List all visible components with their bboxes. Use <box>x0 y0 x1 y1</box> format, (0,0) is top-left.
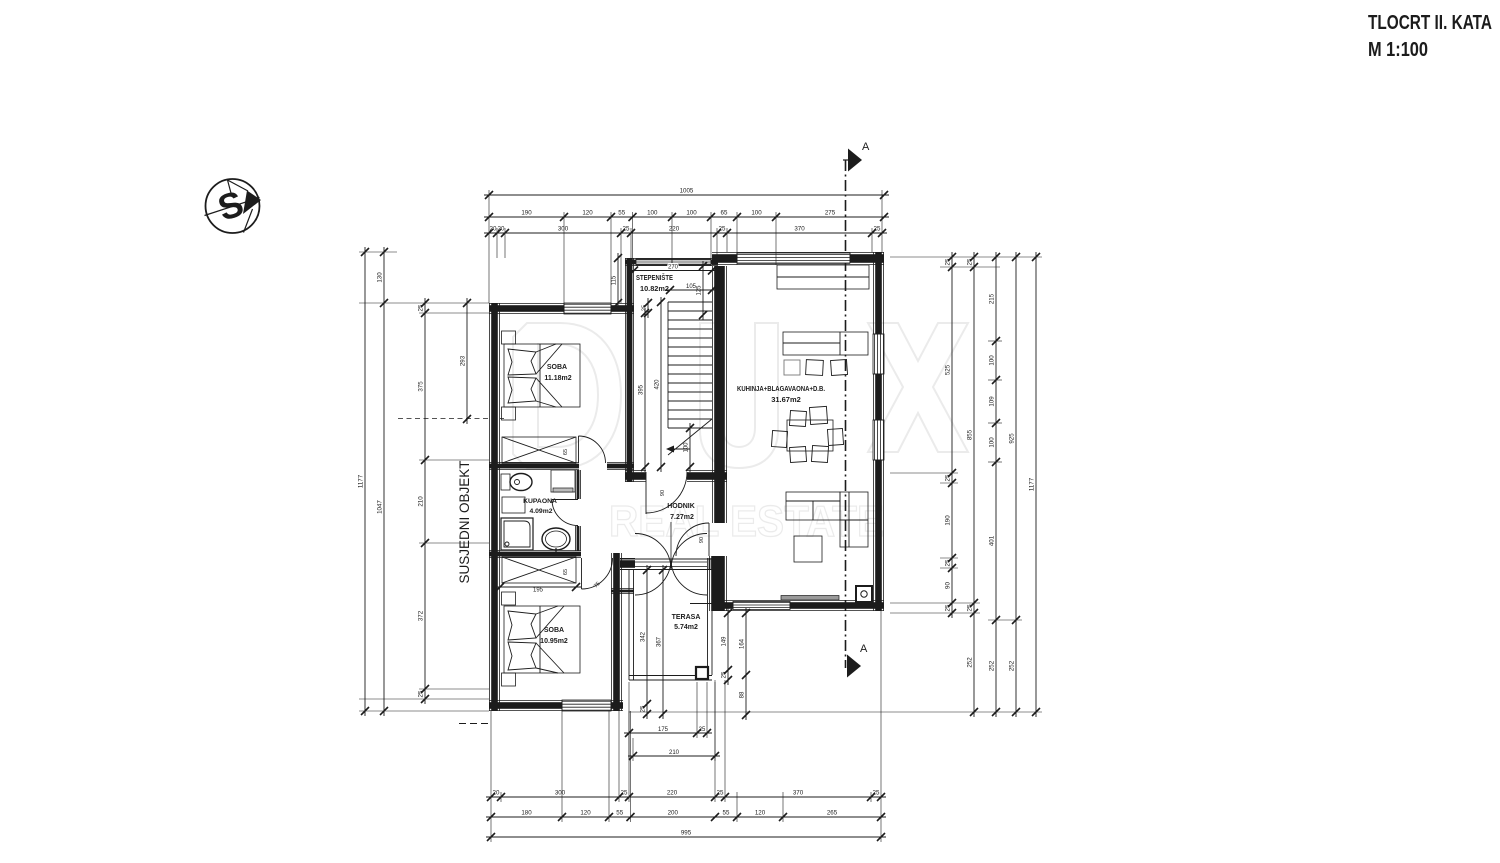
svg-text:1005: 1005 <box>680 188 694 195</box>
svg-text:25: 25 <box>874 226 881 233</box>
svg-text:20: 20 <box>493 790 500 797</box>
svg-text:M 1:100: M 1:100 <box>1368 39 1428 61</box>
svg-text:367: 367 <box>657 636 663 647</box>
svg-text:370: 370 <box>793 790 804 797</box>
svg-text:210: 210 <box>418 496 425 507</box>
svg-text:STEPENIŠTE: STEPENIŠTE <box>636 273 673 282</box>
svg-text:7.27m2: 7.27m2 <box>670 514 694 521</box>
svg-text:105: 105 <box>686 284 697 290</box>
svg-text:375: 375 <box>418 381 425 392</box>
svg-text:100: 100 <box>751 210 762 217</box>
svg-text:25: 25 <box>945 559 952 566</box>
svg-text:25: 25 <box>719 226 726 233</box>
svg-text:25: 25 <box>722 671 728 678</box>
svg-text:109: 109 <box>989 396 996 407</box>
svg-text:A: A <box>860 643 868 655</box>
svg-text:90: 90 <box>660 490 666 496</box>
svg-text:525: 525 <box>945 364 952 375</box>
svg-text:342: 342 <box>641 631 647 642</box>
svg-text:995: 995 <box>681 830 692 837</box>
svg-text:149: 149 <box>722 636 728 647</box>
svg-text:25: 25 <box>717 790 724 797</box>
svg-text:90: 90 <box>699 537 705 543</box>
svg-text:25: 25 <box>641 705 647 712</box>
svg-text:65: 65 <box>563 569 569 575</box>
svg-text:1177: 1177 <box>358 474 365 488</box>
svg-text:115: 115 <box>612 275 618 285</box>
svg-text:100: 100 <box>684 442 690 453</box>
svg-text:25: 25 <box>621 790 628 797</box>
svg-text:25: 25 <box>642 305 648 311</box>
svg-text:31.67m2: 31.67m2 <box>771 395 801 404</box>
svg-text:252: 252 <box>967 657 974 668</box>
svg-text:25: 25 <box>945 474 952 481</box>
svg-text:65: 65 <box>721 210 728 217</box>
svg-text:55: 55 <box>618 210 625 217</box>
svg-text:88: 88 <box>740 691 746 698</box>
svg-text:25: 25 <box>873 790 880 797</box>
svg-text:SOBA: SOBA <box>547 364 567 371</box>
svg-text:65: 65 <box>563 449 569 455</box>
svg-text:KUPAONA: KUPAONA <box>523 498 557 505</box>
svg-text:SUSJEDNI OBJEKT: SUSJEDNI OBJEKT <box>457 460 472 583</box>
svg-text:25: 25 <box>945 604 952 611</box>
svg-text:100: 100 <box>989 437 996 448</box>
svg-text:25: 25 <box>699 727 706 733</box>
svg-text:25: 25 <box>967 604 974 612</box>
svg-text:1177: 1177 <box>1029 477 1036 491</box>
svg-text:25: 25 <box>967 258 974 265</box>
svg-text:200: 200 <box>668 810 679 817</box>
svg-text:11.18m2: 11.18m2 <box>544 375 571 382</box>
svg-text:1047: 1047 <box>377 500 384 514</box>
svg-text:5.74m2: 5.74m2 <box>674 624 698 631</box>
svg-text:252: 252 <box>989 660 996 671</box>
svg-text:252: 252 <box>1009 660 1016 671</box>
svg-text:300: 300 <box>555 790 566 797</box>
svg-text:370: 370 <box>794 226 805 233</box>
svg-text:275: 275 <box>825 210 836 217</box>
svg-text:10.95m2: 10.95m2 <box>540 638 568 645</box>
svg-text:A: A <box>862 141 870 153</box>
svg-text:395: 395 <box>639 384 645 395</box>
svg-text:25: 25 <box>945 258 952 265</box>
svg-text:175: 175 <box>658 727 669 733</box>
svg-text:HODNIK: HODNIK <box>667 503 695 510</box>
svg-text:293: 293 <box>460 355 467 366</box>
svg-text:220: 220 <box>667 790 678 797</box>
svg-text:372: 372 <box>418 610 425 621</box>
svg-text:55: 55 <box>616 810 623 817</box>
svg-text:TLOCRT II. KATA: TLOCRT II. KATA <box>1368 12 1492 34</box>
svg-text:20: 20 <box>498 226 505 233</box>
svg-text:REAL ESTATE: REAL ESTATE <box>609 497 884 546</box>
svg-text:195: 195 <box>533 588 544 594</box>
svg-text:4.09m2: 4.09m2 <box>529 508 552 515</box>
svg-text:25: 25 <box>623 226 630 233</box>
svg-text:20: 20 <box>490 226 497 233</box>
svg-text:401: 401 <box>989 535 996 546</box>
svg-text:420: 420 <box>655 379 661 390</box>
svg-text:TERASA: TERASA <box>672 614 701 621</box>
svg-text:925: 925 <box>1009 433 1016 444</box>
svg-text:120: 120 <box>580 810 591 817</box>
svg-text:100: 100 <box>686 210 697 217</box>
svg-text:120: 120 <box>582 210 593 217</box>
svg-text:130: 130 <box>377 272 384 283</box>
svg-text:10.82m2: 10.82m2 <box>640 286 669 293</box>
svg-text:25: 25 <box>418 690 425 697</box>
svg-text:855: 855 <box>967 429 974 440</box>
svg-text:90: 90 <box>945 582 952 589</box>
svg-text:164: 164 <box>740 638 746 649</box>
svg-text:190: 190 <box>945 515 952 526</box>
svg-text:300: 300 <box>558 226 569 233</box>
svg-text:180: 180 <box>521 810 532 817</box>
svg-text:270: 270 <box>668 264 679 270</box>
svg-text:100: 100 <box>647 210 658 217</box>
svg-text:210: 210 <box>669 750 680 756</box>
svg-text:215: 215 <box>989 293 996 304</box>
svg-text:265: 265 <box>827 810 838 817</box>
svg-text:220: 220 <box>669 226 680 233</box>
svg-text:KUHINJA+BLAGAVAONA+D.B.: KUHINJA+BLAGAVAONA+D.B. <box>737 384 825 393</box>
svg-text:SOBA: SOBA <box>544 627 564 634</box>
svg-text:100: 100 <box>989 355 996 366</box>
svg-text:190: 190 <box>521 210 532 217</box>
svg-text:120: 120 <box>755 810 766 817</box>
svg-text:25: 25 <box>418 304 425 311</box>
svg-text:55: 55 <box>723 810 730 817</box>
